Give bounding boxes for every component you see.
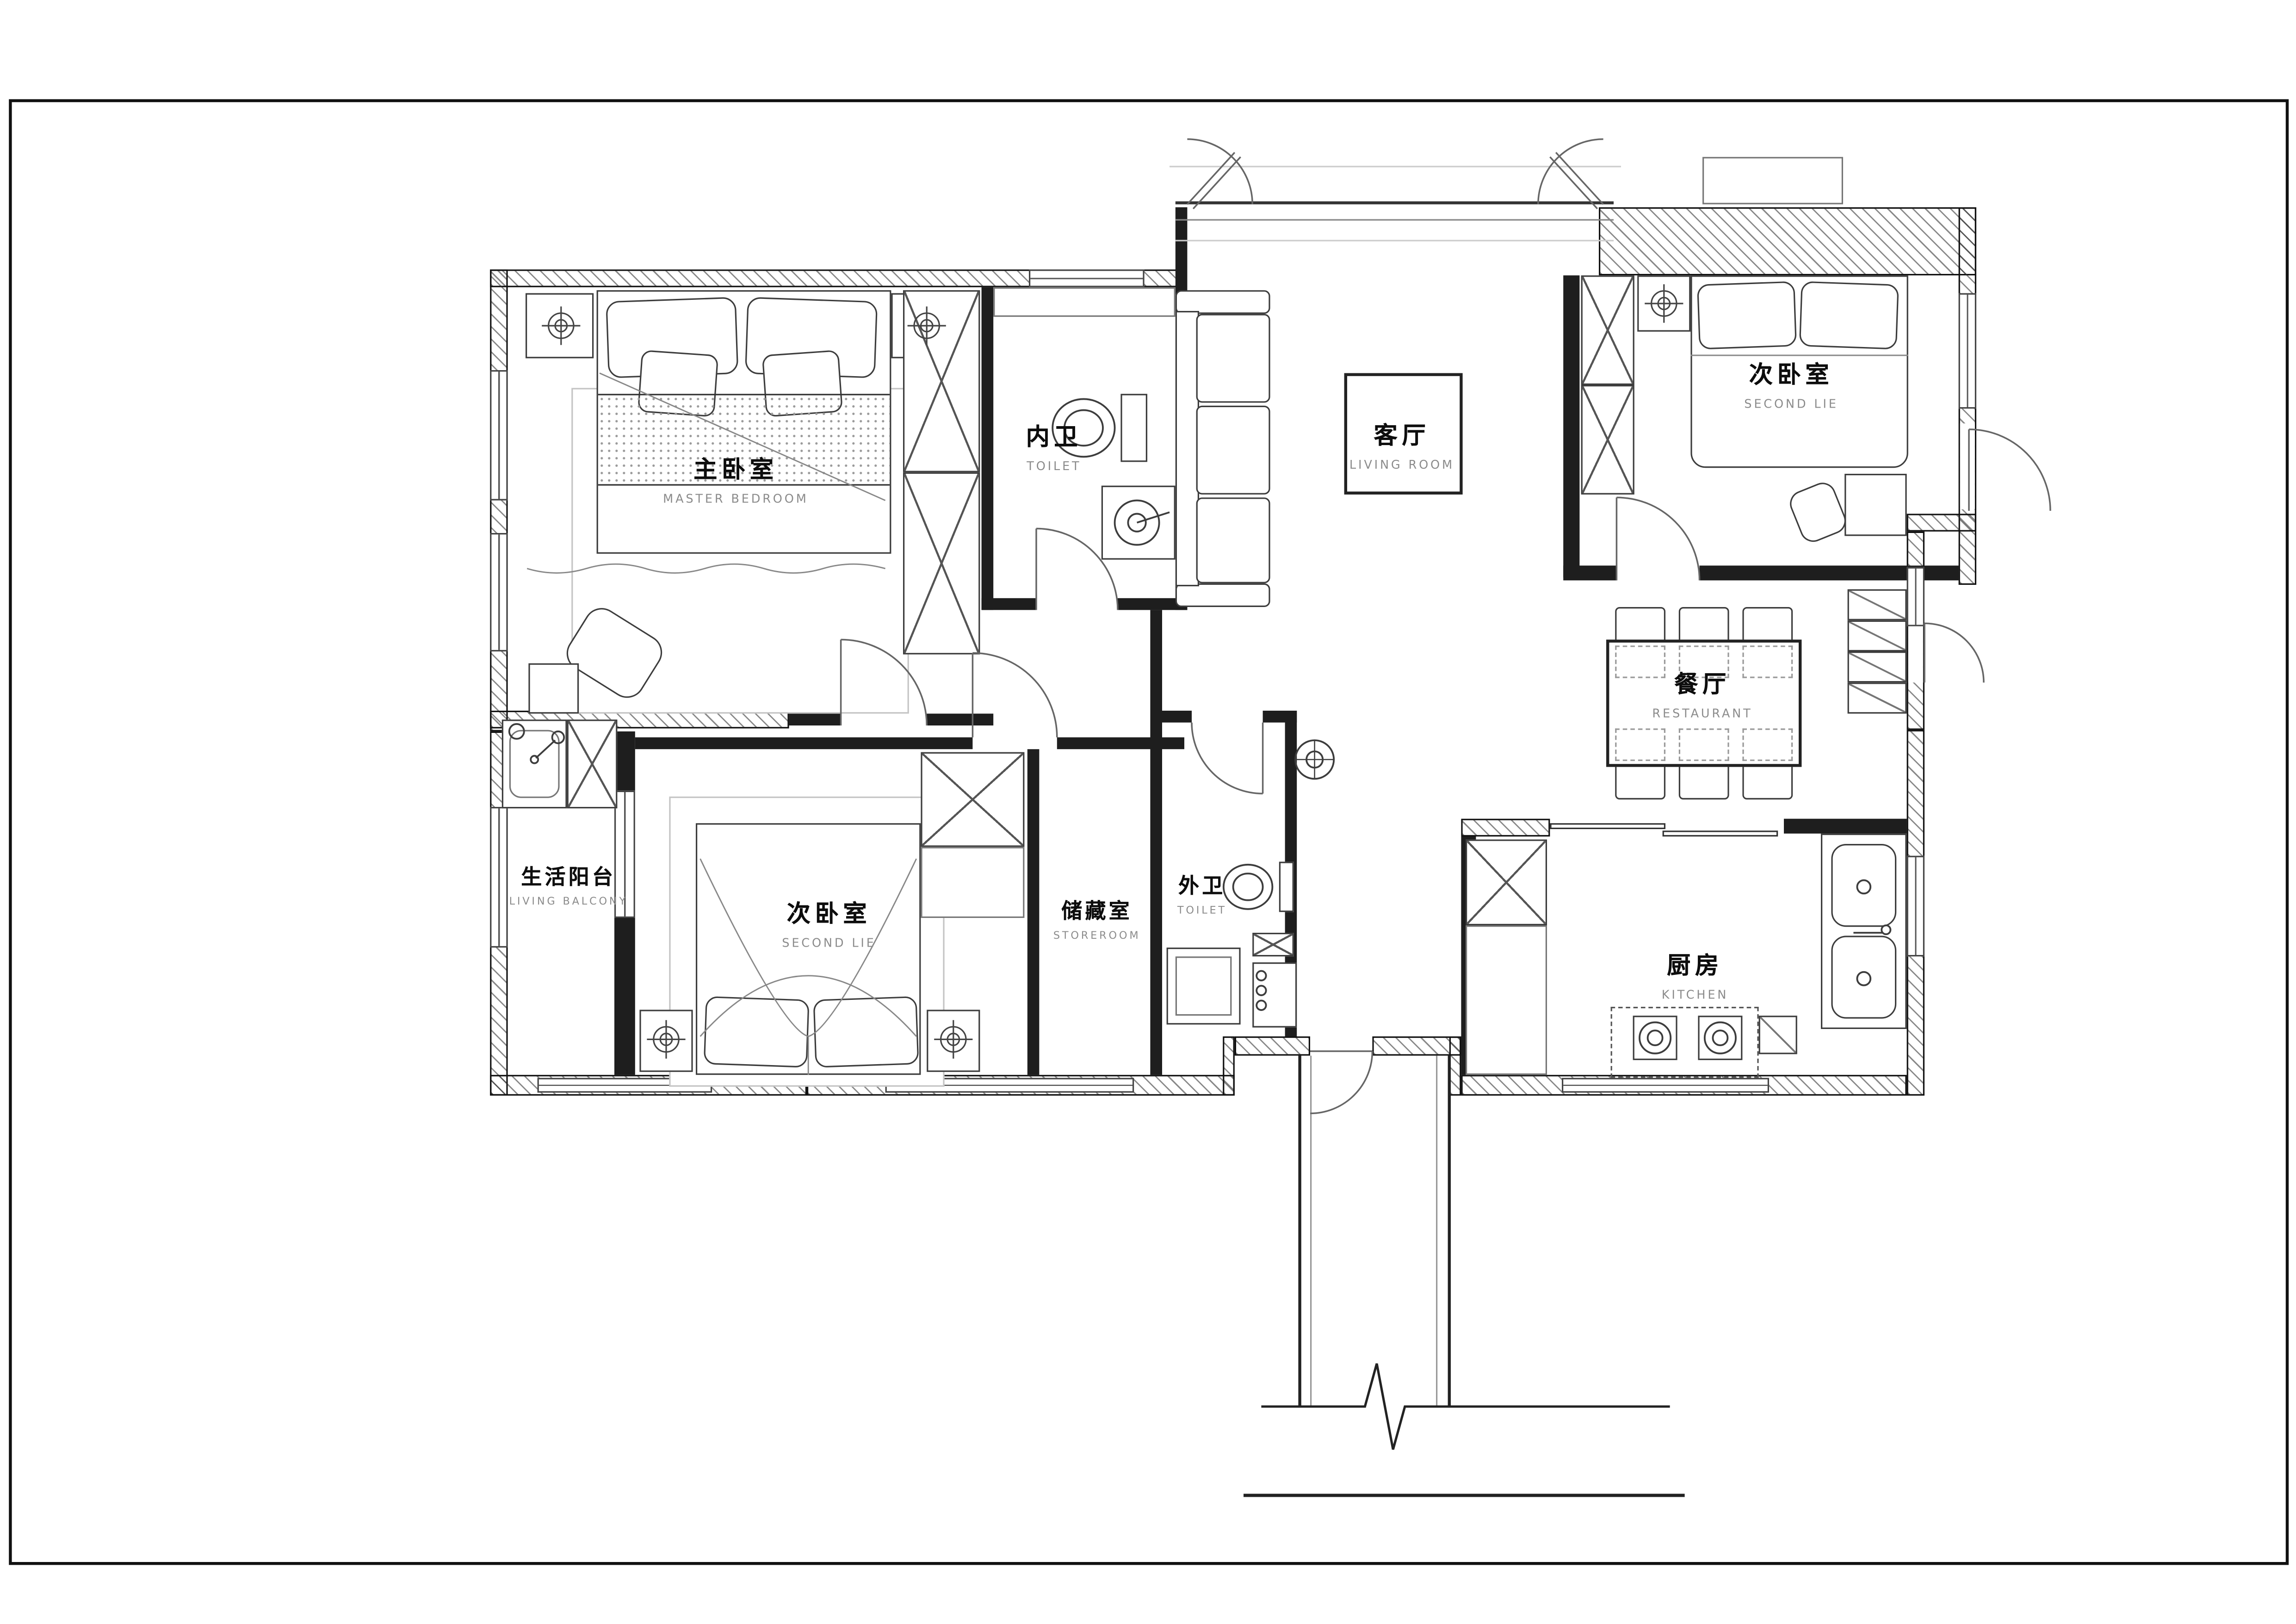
plumbing-fixtures (509, 399, 1891, 1053)
break-symbol (1244, 1364, 1685, 1495)
door-swings (841, 139, 2050, 1114)
annotation-overlay (0, 0, 2296, 1624)
lamp-icons (542, 284, 1683, 1059)
bed-detail-lines (527, 355, 1908, 1075)
floor-plan-sheet: 主卧室 MASTER BEDROOM 内卫 TOILET 客厅 LIVING R… (0, 0, 2296, 1624)
